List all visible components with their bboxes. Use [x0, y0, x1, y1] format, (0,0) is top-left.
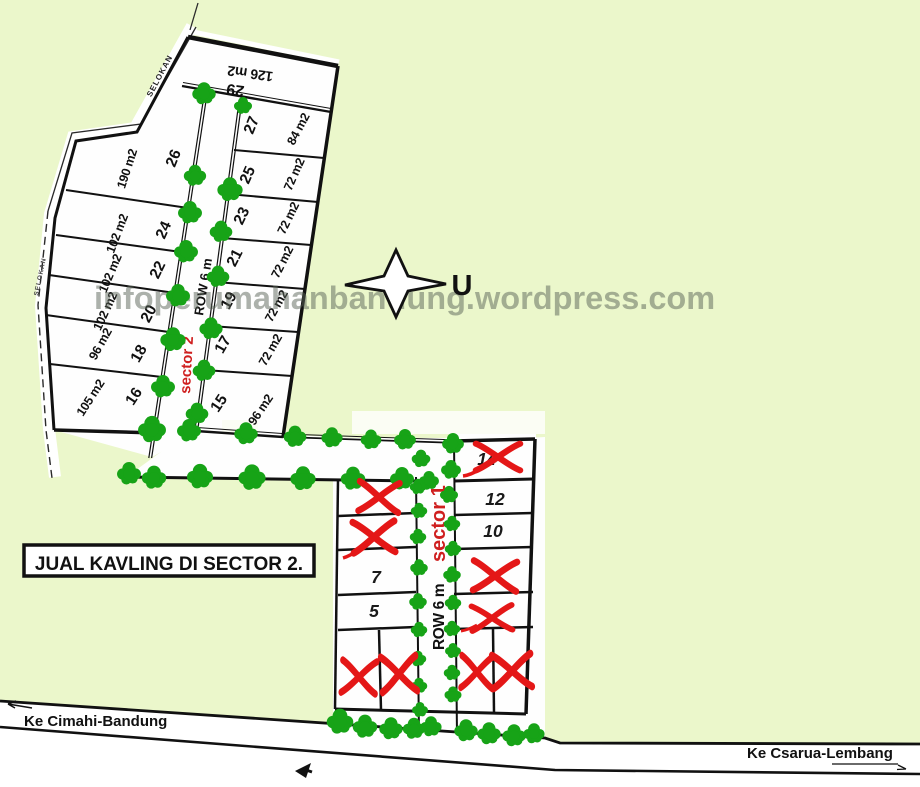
svg-text:5: 5: [369, 601, 379, 621]
svg-text:10: 10: [483, 521, 503, 541]
svg-text:JUAL KAVLING DI SECTOR 2.: JUAL KAVLING DI SECTOR 2.: [35, 554, 303, 575]
svg-text:U: U: [452, 270, 473, 302]
svg-text:7: 7: [371, 567, 382, 587]
svg-text:Ke Cimahi-Bandung: Ke Cimahi-Bandung: [24, 713, 167, 730]
svg-text:ROW 6 m: ROW 6 m: [431, 584, 448, 650]
svg-text:12: 12: [485, 489, 505, 509]
svg-text:Ke Csarua-Lembang: Ke Csarua-Lembang: [747, 745, 893, 762]
svg-text:29: 29: [225, 80, 245, 99]
